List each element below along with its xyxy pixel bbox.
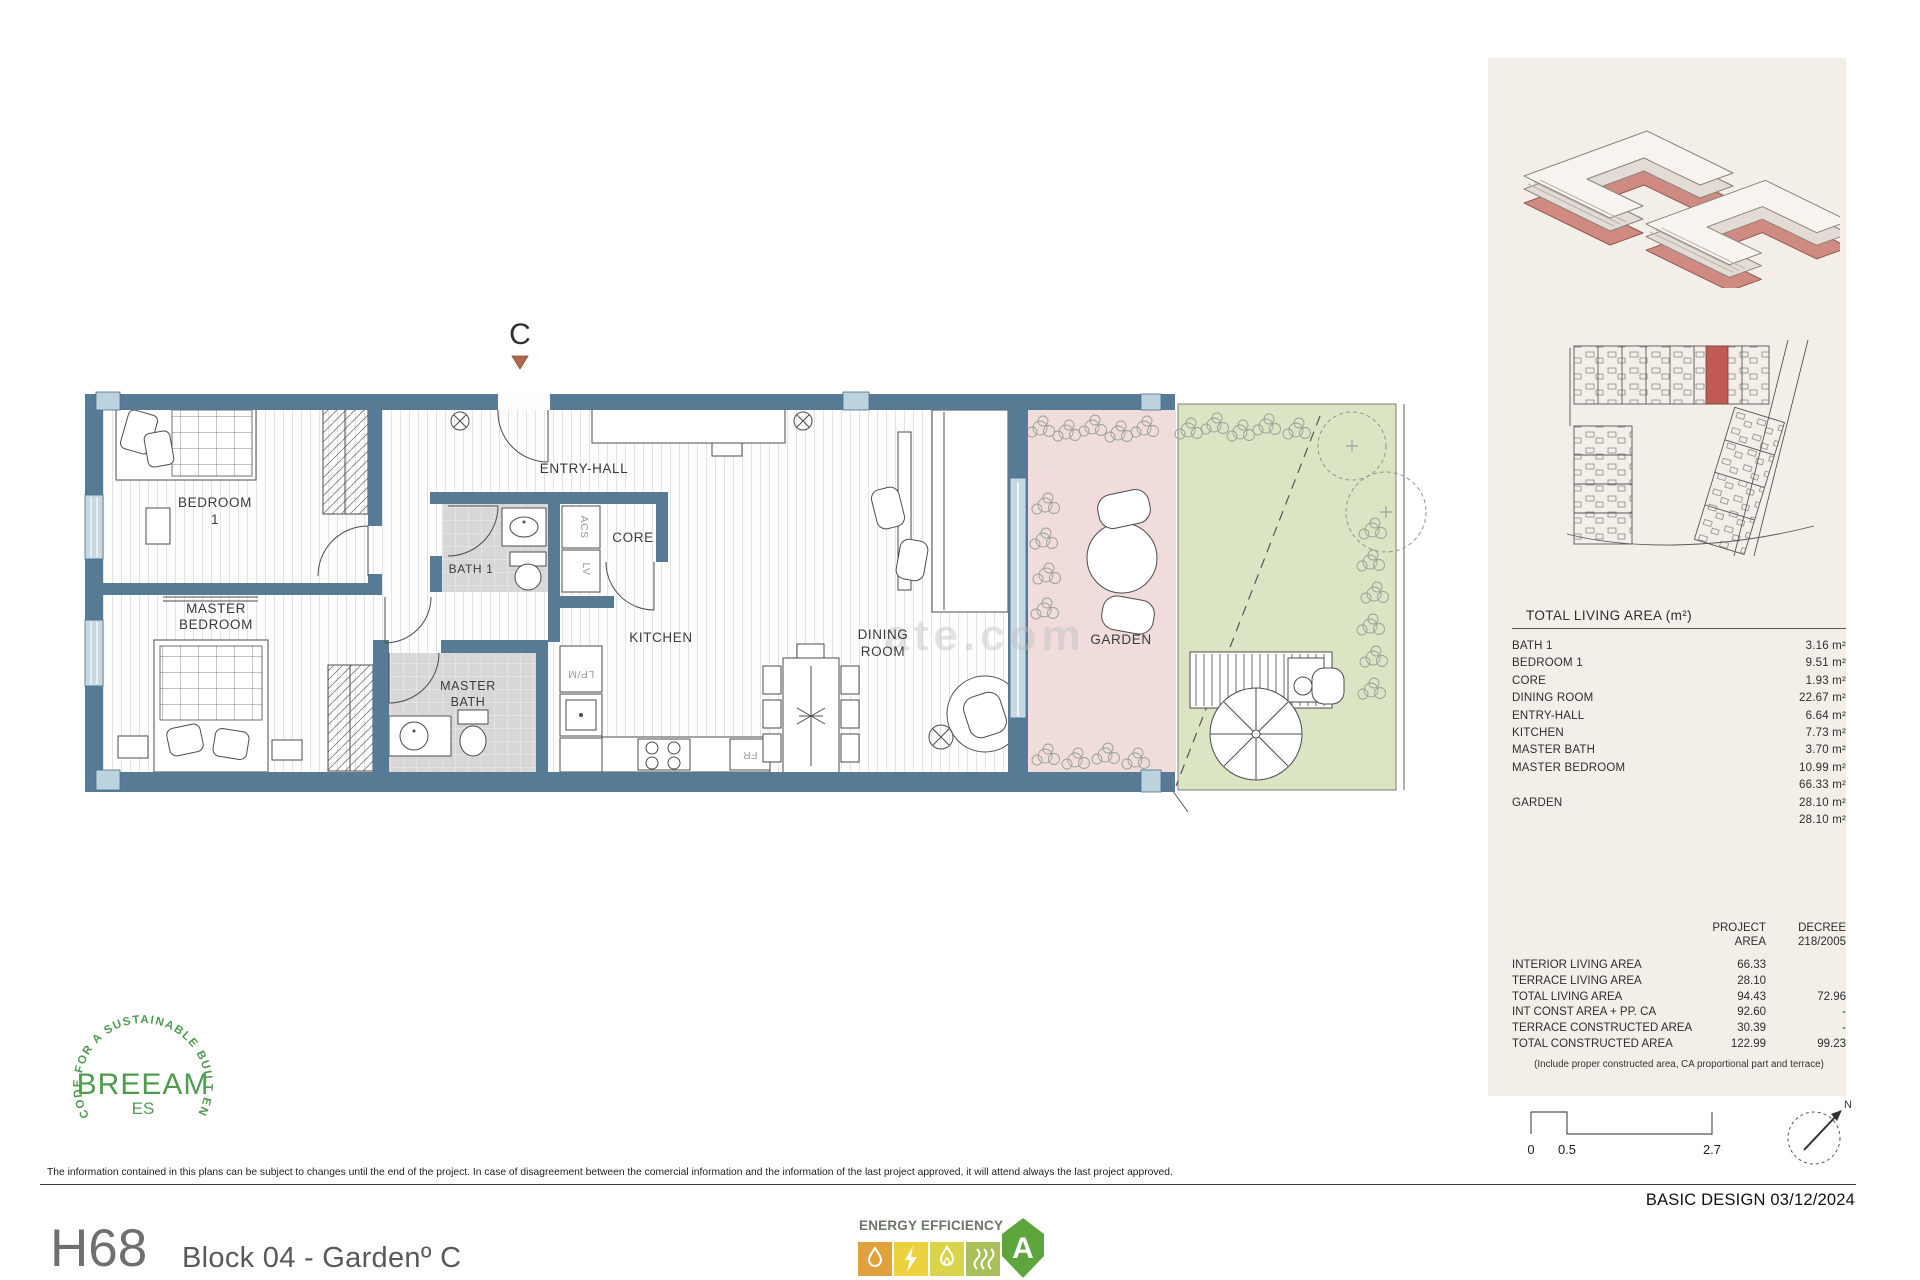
- label-fr: FR: [743, 749, 758, 761]
- table-row: ENTRY-HALL6.64 m²: [1512, 708, 1846, 725]
- table-row: GARDEN28.10 m²: [1512, 795, 1846, 812]
- unit-code: H68: [50, 1222, 147, 1275]
- table-row: INT CONST AREA + PP. CA92.60-: [1512, 1005, 1846, 1021]
- row-label: MASTER BEDROOM: [1512, 760, 1625, 777]
- basic-design-stamp: BASIC DESIGN 03/12/2024: [1455, 1191, 1855, 1210]
- scale-bar: 0 0.5 2.7: [1520, 1098, 1730, 1168]
- scale-tick-0: 0: [1527, 1142, 1534, 1157]
- master-bath: [387, 653, 536, 772]
- table-row: INTERIOR LIVING AREA66.33: [1512, 958, 1846, 974]
- compass-n-label: N: [1844, 1099, 1852, 1111]
- breeam-name: BREEAM: [77, 1068, 210, 1101]
- label-kitchen: KITCHEN: [629, 630, 692, 645]
- table-row: BEDROOM 19.51 m²: [1512, 655, 1846, 672]
- row-label: MASTER BATH: [1512, 742, 1595, 759]
- row-value: 1.93 m²: [1806, 673, 1846, 690]
- label-bedroom1: BEDROOM: [178, 495, 252, 510]
- garden-terrace: [1027, 404, 1426, 812]
- site-plan-highlight-unit: [1706, 346, 1728, 404]
- table-row: MASTER BATH3.70 m²: [1512, 742, 1846, 759]
- label-dining2: ROOM: [861, 644, 905, 659]
- label-master-bath: MASTER: [440, 679, 496, 693]
- row-label: BATH 1: [1512, 638, 1553, 655]
- table-row: 28.10 m²: [1512, 812, 1846, 829]
- table-row: TERRACE CONSTRUCTED AREA30.39-: [1512, 1021, 1846, 1037]
- row-value: 66.33 m²: [1799, 777, 1846, 794]
- summary-footnote: (Include proper constructed area, CA pro…: [1512, 1059, 1846, 1070]
- disclaimer-text: The information contained in this plans …: [47, 1167, 1173, 1178]
- row-value: 6.64 m²: [1806, 708, 1846, 725]
- site-plan: [1562, 334, 1820, 562]
- row-label: GARDEN: [1512, 795, 1562, 812]
- table-row: KITCHEN7.73 m²: [1512, 725, 1846, 742]
- row-value: 7.73 m²: [1806, 725, 1846, 742]
- breeam-logo: CODE FOR A SUSTAINABLE BUILT ENVIRONMENT…: [62, 1006, 224, 1164]
- row-value: 28.10 m²: [1799, 812, 1846, 829]
- col-project: PROJECT AREA: [1702, 922, 1766, 949]
- table-row: BATH 13.16 m²: [1512, 638, 1846, 655]
- label-master-bedroom: MASTER: [186, 601, 246, 616]
- row-label: KITCHEN: [1512, 725, 1564, 742]
- area-table-title: TOTAL LIVING AREA (m²): [1526, 608, 1846, 628]
- section-marker-arrow-icon: [512, 356, 528, 369]
- label-bedroom1-num: 1: [211, 512, 219, 527]
- info-panel: TOTAL LIVING AREA (m²) BATH 13.16 m² BED…: [1488, 58, 1846, 1096]
- row-value: 28.10 m²: [1799, 795, 1846, 812]
- row-value: 22.67 m²: [1799, 690, 1846, 707]
- label-lv: LV: [580, 562, 592, 575]
- area-table-rule: [1512, 628, 1846, 629]
- scale-tick-27: 2.7: [1703, 1142, 1721, 1157]
- label-bath1: BATH 1: [449, 562, 494, 576]
- label-master-bedroom2: BEDROOM: [179, 617, 253, 632]
- bath1: [442, 504, 548, 592]
- breeam-region: ES: [132, 1099, 155, 1118]
- table-row: MASTER BEDROOM10.99 m²: [1512, 760, 1846, 777]
- label-dining: DINING: [858, 627, 909, 642]
- label-master-bath2: BATH: [451, 695, 486, 709]
- row-label: DINING ROOM: [1512, 690, 1593, 707]
- row-value: 10.99 m²: [1799, 760, 1846, 777]
- row-label: ENTRY-HALL: [1512, 708, 1584, 725]
- table-row: 66.33 m²: [1512, 777, 1846, 794]
- row-label: BEDROOM 1: [1512, 655, 1583, 672]
- energy-efficiency-badge: ENERGY EFFICIENCY A: [856, 1212, 1046, 1280]
- section-marker-letter: C: [509, 318, 531, 351]
- row-value: 9.51 m²: [1806, 655, 1846, 672]
- floor-plan: ate.com BEDROOM 1 MASTER BEDROOM BATH 1 …: [40, 300, 1460, 830]
- area-table: TOTAL LIVING AREA (m²) BATH 13.16 m² BED…: [1512, 608, 1846, 829]
- energy-rating-letter: A: [1012, 1232, 1034, 1265]
- label-lpm: LP/M: [568, 668, 595, 680]
- divider-line: [40, 1184, 1856, 1185]
- table-row: DINING ROOM22.67 m²: [1512, 690, 1846, 707]
- building-3d-render: [1496, 78, 1840, 288]
- table-row: TERRACE LIVING AREA28.10: [1512, 974, 1846, 990]
- section-marker: C: [509, 318, 531, 369]
- table-row: TOTAL CONSTRUCTED AREA122.9999.23: [1512, 1037, 1846, 1053]
- parasol: [1210, 688, 1302, 780]
- col-decree: DECREE 218/2005: [1766, 922, 1846, 949]
- unit-title: Block 04 - Gardenº C: [182, 1242, 461, 1275]
- floorplan-page: ate.com BEDROOM 1 MASTER BEDROOM BATH 1 …: [0, 0, 1920, 1280]
- scale-tick-05: 0.5: [1558, 1142, 1576, 1157]
- label-core: CORE: [612, 530, 653, 545]
- north-compass-icon: N: [1776, 1094, 1860, 1170]
- table-row: CORE1.93 m²: [1512, 673, 1846, 690]
- watermark: ate.com: [884, 611, 1085, 660]
- summary-table: PROJECT AREA DECREE 218/2005 INTERIOR LI…: [1512, 922, 1846, 1070]
- label-garden: GARDEN: [1090, 632, 1151, 647]
- label-acs: ACS: [578, 515, 590, 538]
- row-value: 3.16 m²: [1806, 638, 1846, 655]
- summary-header: PROJECT AREA DECREE 218/2005: [1512, 922, 1846, 949]
- table-row: TOTAL LIVING AREA94.4372.96: [1512, 990, 1846, 1006]
- row-value: 3.70 m²: [1806, 742, 1846, 759]
- row-label: CORE: [1512, 673, 1546, 690]
- label-entry-hall: ENTRY-HALL: [540, 461, 629, 476]
- energy-title: ENERGY EFFICIENCY: [859, 1218, 1003, 1233]
